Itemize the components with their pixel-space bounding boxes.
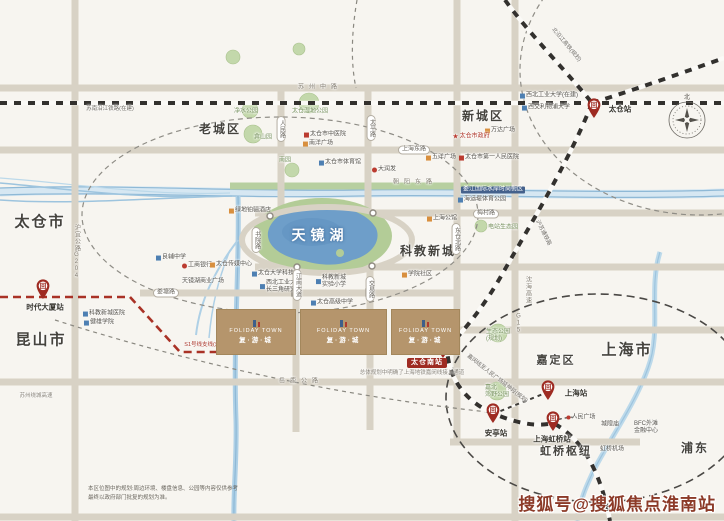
area-label-kunshan-city: 昆山市 <box>15 331 66 348</box>
mall-icon <box>427 216 432 221</box>
dot-icon <box>566 416 570 420</box>
school-icon <box>252 271 257 276</box>
disclaimer-line-1: 本区位图中的规划:周边环境、楼盘信息、公园等内容仅供参考 <box>88 484 238 492</box>
poi-nan-park: 南园 <box>279 158 291 165</box>
area-label-jiading: 嘉定区 <box>537 355 576 368</box>
road-label-shuyuan-rd: 书院路 <box>252 227 261 253</box>
poi-experimental-primary: 科教新城 实验小学 <box>316 275 346 289</box>
compass-rose: 北 <box>669 93 705 138</box>
road-label-g15: G15 <box>515 314 522 335</box>
station-pin-hongqiao-station: 回 <box>545 410 561 432</box>
bank-icon <box>372 167 377 172</box>
road-label-yuelu-highway: 岳鹿公路 <box>279 379 323 386</box>
bank-icon <box>182 263 187 268</box>
building-logo-icon <box>253 320 260 327</box>
poi-sports-stadium: 太仓市体育馆 <box>319 160 361 167</box>
school-icon <box>260 285 265 290</box>
project-building-1: FOLIDAY TOWN复·游·城 <box>216 309 296 355</box>
poi-first-peoples-hospital: 太仓市第一人民医院 <box>459 155 519 162</box>
mall-icon <box>210 262 215 267</box>
road-label-dongcang-north-rd: 东仓北路 <box>452 223 461 255</box>
building-logo-cn: 复·游·城 <box>409 334 443 344</box>
road-label-shenhai-expwy: 沈海高速 <box>524 276 531 304</box>
road-label-meicun-rd: 梅村路 <box>473 210 499 219</box>
school-icon <box>319 160 324 165</box>
svg-text:回: 回 <box>490 405 497 414</box>
star-icon: ★ <box>452 134 458 141</box>
poi-wuyang-plaza: 五洋广场 <box>426 155 456 162</box>
poi-loujiang-waterfront: 娄江国际水岸时尚街区 <box>461 187 525 194</box>
school-icon <box>83 311 88 316</box>
watermark: 搜狐号@搜狐焦点淮南站 <box>518 490 716 515</box>
building-logo-icon <box>340 320 347 327</box>
poi-bfc-bund-finance-center: BFC外滩 金融中心 <box>634 421 658 435</box>
station-label-shanghai-station: 上海站 <box>565 390 588 399</box>
road-label-renmin-rd: 人民路 <box>277 116 286 142</box>
building-logo-cn: 复·游·城 <box>239 334 273 344</box>
station-label-shidai-dasha-station: 时代大厦站 <box>26 304 64 313</box>
school-icon <box>522 105 527 110</box>
station-label-taicang-station: 太仓站 <box>609 106 632 115</box>
road-label-jiangnan-ave: 江南大道 <box>293 269 302 301</box>
school-icon <box>311 300 316 305</box>
area-label-shanghai-city: 上海市 <box>601 341 652 358</box>
poi-wetland-park: 太仓湿地公园 <box>292 109 328 116</box>
school-icon <box>156 255 161 260</box>
poi-yanshan-park: 弇山园 <box>254 135 272 142</box>
station-label-taicang-south-station: 太仓南站 <box>407 358 447 368</box>
hospital-icon <box>459 155 464 160</box>
poi-nanyang-plaza: 南洋广场 <box>303 141 333 148</box>
area-label-pudong: 浦东 <box>681 442 709 456</box>
poi-tcm-hospital: 太仓市中医院 <box>304 132 346 139</box>
road-label-suzhou-middle-rd: 苏州中路 <box>298 85 342 92</box>
map-graphics: 北 <box>0 0 724 521</box>
hospital-icon <box>304 132 309 137</box>
mall-icon <box>229 208 234 213</box>
rail-label-sunan-yanjiang-railway: 苏南沿江铁路(在建) <box>86 106 134 112</box>
area-label-sci-edu-city: 科教新城 <box>400 245 456 259</box>
poi-dianzhan-eco-park: 电站生态园 <box>488 225 518 232</box>
station-pin-taicang-station: 回 <box>586 97 602 119</box>
road-label-chaoyang-east-rd: 朝阳东路 <box>393 180 437 187</box>
area-label-old-town: 老城区 <box>199 123 241 137</box>
location-map: 北 天镜湖 本区位图中的规划:周边环境、楼盘信息、公园等内容仅供参考 最终以政府… <box>0 0 724 521</box>
school-icon <box>520 93 525 98</box>
station-pin-shanghai-station: 回 <box>540 379 556 401</box>
station-label-anting-station: 安亭站 <box>485 430 508 439</box>
area-label-taicang-city: 太仓市 <box>14 213 65 230</box>
poi-peoples-square: 人民广场 <box>566 415 595 422</box>
poi-rt-mart: 大润发 <box>372 167 396 174</box>
svg-text:回: 回 <box>550 413 557 422</box>
poi-taicang-senior-high: 太仓高级中学 <box>311 300 353 307</box>
poi-jingshui-park: 净水公园 <box>234 109 258 116</box>
poi-xjtlu: 西交利物浦大学 <box>522 105 570 112</box>
svg-text:回: 回 <box>591 100 598 109</box>
road-label-taiping-rd: 太平路 <box>367 115 376 141</box>
poi-haiyundi-park: 海运堤体育公园 <box>458 197 506 204</box>
mall-icon <box>426 155 431 160</box>
station-pin-shidai-dasha-station: 回 <box>35 278 51 300</box>
lake-name: 天镜湖 <box>292 225 349 245</box>
rail-label-planning-note: 总体规划中明确了上海地铁嘉闵线接入通道 <box>360 370 465 376</box>
project-building-3: FOLIDAY TOWN复·游·城 <box>391 309 460 355</box>
poi-shanghai-mansion: 上海公馆 <box>427 216 457 223</box>
area-label-hongqiao-hub: 虹桥枢纽 <box>540 446 592 459</box>
poi-icbc-bank: 工商银行 <box>182 263 212 270</box>
road-label-suzhou-ring-expwy: 苏州绕城高速 <box>19 393 52 399</box>
poi-xueyuan-community: 学院社区 <box>402 272 432 279</box>
station-pin-anting-station: 回 <box>485 402 501 424</box>
poi-chenghuang-temple: 城隍庙 <box>601 422 619 429</box>
poi-taicang-government: ★太仓市政府 <box>452 134 489 141</box>
road-label-shanghai-east-rd: 上海东路 <box>398 146 430 155</box>
poi-tianjinghu-plaza: 天镜湖商业广场 <box>182 279 224 286</box>
poi-jianxiong-college: 健雄学院 <box>84 320 114 327</box>
svg-text:回: 回 <box>40 281 47 290</box>
building-logo-icon <box>422 320 429 327</box>
poi-kjxc-hospital: 科教新城医院 <box>83 311 125 318</box>
poi-nwpu: 西北工业大学(在建) <box>520 93 578 100</box>
poi-liangfu-middle-school: 良辅中学 <box>156 255 186 262</box>
poi-eco-park-planned: 生态公园 (规划) <box>486 329 510 343</box>
poi-hongqiao-airport: 虹桥机场 <box>600 447 624 454</box>
mall-icon <box>303 141 308 146</box>
road-label-huyi-highway: 沪宜公路G204 <box>73 224 80 280</box>
school-icon <box>84 320 89 325</box>
station-label-hongqiao-station: 上海虹桥站 <box>533 436 571 445</box>
disclaimer-line-2: 最终以政府部门批复的规划为准。 <box>88 493 171 501</box>
building-logo-cn: 复·游·城 <box>327 334 361 344</box>
poi-media-center: 太仓传媒中心 <box>210 262 252 269</box>
school-icon <box>458 197 463 202</box>
mall-icon <box>402 272 407 277</box>
road-label-jiaoyi-rd: 交易路 <box>366 276 375 302</box>
area-label-new-town: 新城区 <box>462 110 504 124</box>
road-label-loutang-rd: 娄塘路 <box>153 289 179 298</box>
project-building-2: FOLIDAY TOWN复·游·城 <box>300 309 387 355</box>
poi-greenland-hotel: 绿地铂骊酒店 <box>229 208 271 215</box>
svg-text:回: 回 <box>545 382 552 391</box>
school-icon <box>316 280 321 285</box>
compass-north-label: 北 <box>684 93 690 101</box>
